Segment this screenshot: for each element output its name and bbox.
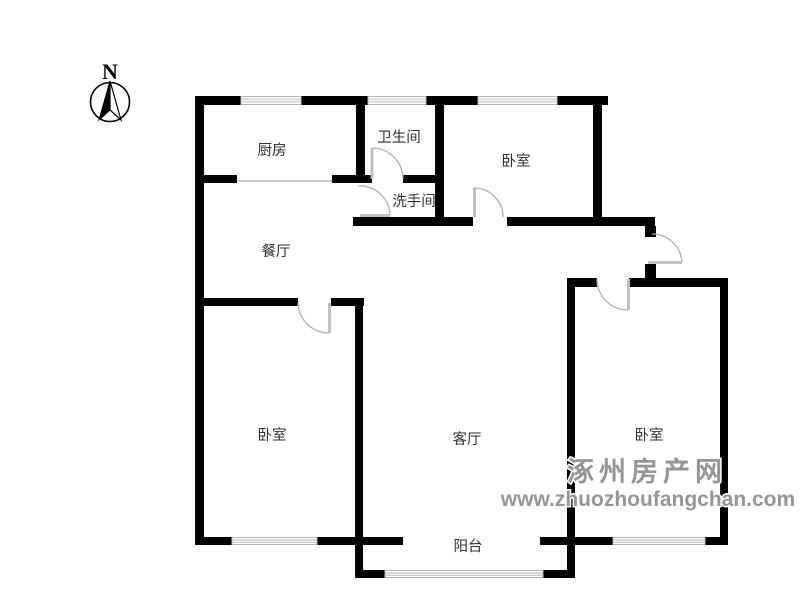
- wall-segment: [195, 298, 298, 306]
- entry-door: [648, 234, 682, 263]
- wall-segment: [363, 537, 403, 545]
- room-label-bathroom: 卫生间: [377, 129, 421, 146]
- north-bedroom-door: [474, 188, 503, 217]
- wall-segment: [355, 570, 385, 578]
- watermark: 涿州房产网 www.zhuozhoufangchan.com: [500, 457, 795, 511]
- wall-segment: [353, 217, 473, 226]
- north-bedroom-window: [478, 97, 557, 105]
- wall-segment: [356, 175, 372, 183]
- east-bedroom-window: [613, 538, 705, 545]
- wall-segment: [705, 537, 728, 545]
- compass-north-label: N: [102, 59, 118, 84]
- wall-segment: [435, 96, 444, 226]
- room-label-washroom: 洗手间: [392, 193, 436, 210]
- wall-segment: [567, 278, 575, 578]
- bathroom-door: [372, 148, 403, 179]
- wall-segment: [317, 537, 363, 545]
- wall-segment: [567, 537, 613, 545]
- compass-needle-icon: [99, 81, 110, 120]
- floor-plan-page: N 厨房 卫生间 洗手间 卧室 餐厅 卧室 客厅 卧室 阳台 涿州房产网 www…: [0, 0, 800, 600]
- west-bedroom-door: [298, 303, 330, 333]
- kitchen-window: [241, 97, 301, 105]
- balcony-window: [385, 571, 543, 578]
- west-bedroom-window: [232, 538, 317, 545]
- watermark-site-name: 涿州房产网: [567, 457, 727, 487]
- room-label-balcony: 阳台: [454, 538, 483, 555]
- wall-segment: [645, 264, 656, 279]
- wall-segment: [645, 226, 656, 237]
- wall-segment: [195, 96, 204, 545]
- room-label-bedroom-north: 卧室: [502, 153, 531, 170]
- wall-segment: [195, 537, 232, 545]
- watermark-url: www.zhuozhoufangchan.com: [500, 488, 795, 511]
- bathroom-window: [368, 97, 426, 105]
- wall-segment: [629, 278, 728, 287]
- room-label-bedroom-east: 卧室: [635, 427, 664, 444]
- wall-segment: [567, 278, 597, 287]
- wall-segment: [356, 96, 365, 183]
- compass-needle-icon: [110, 81, 121, 120]
- room-label-bedroom-west: 卧室: [258, 427, 287, 444]
- wall-segment: [403, 175, 435, 183]
- room-label-kitchen: 厨房: [258, 142, 287, 159]
- wall-segment: [426, 96, 478, 105]
- wall-segment: [507, 217, 655, 226]
- floor-plan-drawing: N 厨房 卫生间 洗手间 卧室 餐厅 卧室 客厅 卧室 阳台 涿州房产网 www…: [0, 0, 800, 600]
- compass: N: [91, 59, 130, 122]
- room-label-dining: 餐厅: [262, 243, 291, 260]
- east-bedroom-door: [597, 279, 629, 310]
- washroom-door: [358, 186, 390, 216]
- wall-segment: [593, 96, 602, 226]
- room-label-living: 客厅: [453, 431, 482, 448]
- wall-segment: [355, 298, 363, 578]
- wall-segment: [195, 175, 237, 183]
- kitchen-opening-threshold: [237, 180, 332, 182]
